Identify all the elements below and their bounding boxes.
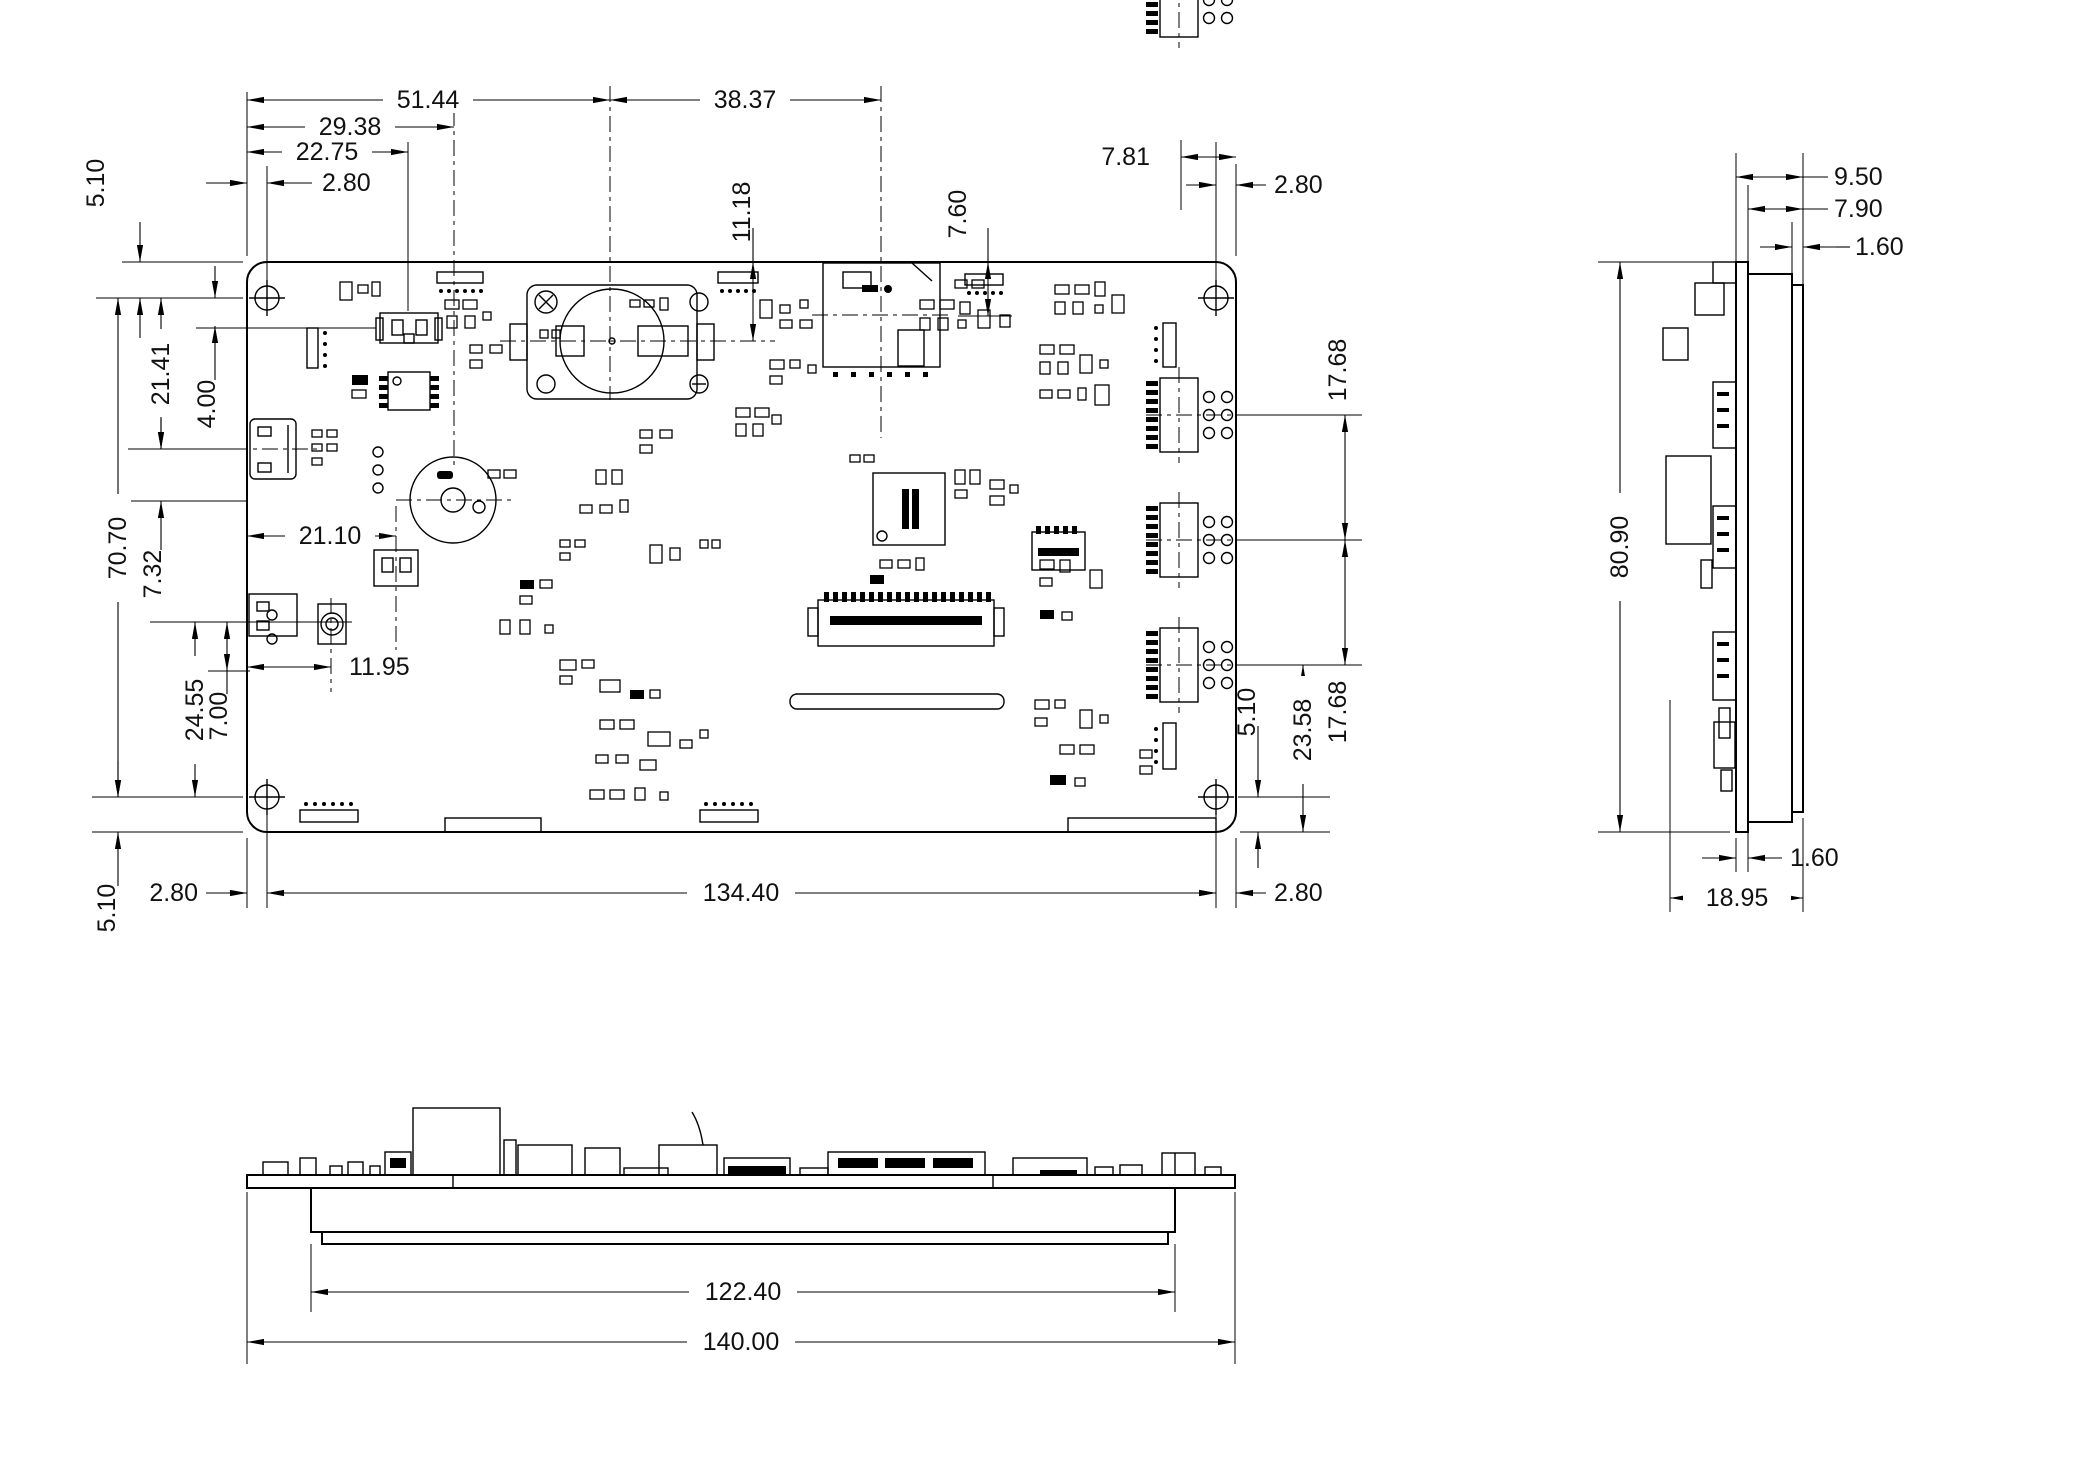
front-view — [247, 1108, 1235, 1244]
dim-label-51-44: 51.44 — [397, 86, 460, 114]
front-display-glass — [322, 1232, 1168, 1244]
dim-label-21-41: 21.41 — [147, 343, 175, 406]
bottom-edge-connector — [445, 818, 541, 832]
edge-connector-bottom-left — [249, 594, 297, 636]
front-components — [263, 1108, 1221, 1175]
dim-label-140-00: 140.00 — [703, 1328, 779, 1356]
extension-lines — [92, 92, 1362, 908]
dim-label-80-90: 80.90 — [1606, 516, 1634, 579]
dim-label-1-60-bottom: 1.60 — [1790, 844, 1839, 872]
pcb-dimension-drawing: 51.44 38.37 29.38 22.75 2.80 7.81 2.80 1… — [0, 0, 2077, 1465]
dim-label-5-10-right: 5.10 — [1233, 688, 1261, 737]
side-connectors — [1663, 262, 1736, 791]
side-pcb — [1736, 262, 1748, 832]
dim-label-29-38: 29.38 — [319, 113, 382, 141]
lcd-ffc-connector — [808, 592, 1004, 646]
dim-label-21-10: 21.10 — [299, 522, 362, 550]
dim-label-38-37: 38.37 — [714, 86, 777, 114]
buzzer — [410, 457, 496, 543]
dim-label-11-95: 11.95 — [349, 653, 410, 681]
dim-label-2-80-bottom-right: 2.80 — [1274, 879, 1323, 907]
dim-label-7-90: 7.90 — [1834, 195, 1883, 223]
soic8-ic — [379, 372, 439, 410]
side-display-glass — [1792, 285, 1803, 812]
board-outline — [247, 262, 1236, 832]
front-component-details — [390, 1158, 1077, 1176]
side-display-module — [1748, 274, 1792, 822]
dim-label-23-58: 23.58 — [1289, 699, 1317, 762]
dim-label-18-95: 18.95 — [1706, 884, 1769, 912]
main-ic — [873, 473, 945, 545]
top-view-dimensions: 51.44 38.37 29.38 22.75 2.80 7.81 2.80 1… — [82, 86, 1362, 932]
dim-label-1-60-top: 1.60 — [1855, 233, 1904, 261]
front-view-dimensions: 122.40 140.00 — [247, 1192, 1235, 1364]
board-slot — [790, 694, 1004, 709]
tact-switch — [318, 604, 346, 644]
front-pcb — [247, 1175, 1235, 1188]
drawing-canvas: 51.44 38.37 29.38 22.75 2.80 7.81 2.80 1… — [0, 0, 2077, 1465]
dim-label-7-32: 7.32 — [139, 550, 167, 599]
side-view-dimensions: 9.50 7.90 1.60 80.90 1.60 18.95 — [1598, 153, 1904, 912]
dim-label-7-00: 7.00 — [205, 692, 233, 741]
dim-label-4-00: 4.00 — [193, 380, 221, 429]
side-connector-pins — [1717, 392, 1729, 678]
coin-battery-holder — [510, 285, 714, 399]
dim-label-2-80-top-left: 2.80 — [322, 169, 371, 197]
dim-label-2-80-bottom-left: 2.80 — [149, 879, 198, 907]
front-display-module — [311, 1188, 1175, 1232]
dim-label-11-18: 11.18 — [728, 182, 756, 243]
jst-connector-top-left — [376, 313, 442, 343]
bottom-edge-connector — [1068, 818, 1216, 832]
dim-label-17-68-top: 17.68 — [1324, 339, 1352, 402]
dim-label-122-40: 122.40 — [705, 1278, 781, 1306]
dim-label-9-50: 9.50 — [1834, 163, 1883, 191]
dim-label-7-81: 7.81 — [1101, 143, 1150, 171]
dim-label-17-68-bottom: 17.68 — [1324, 681, 1352, 744]
dim-label-5-10-top-left: 5.10 — [82, 159, 110, 208]
jst-connector — [1146, 0, 1233, 48]
dim-label-134-40: 134.40 — [703, 879, 779, 907]
side-view — [1663, 262, 1803, 832]
dim-label-70-70: 70.70 — [104, 517, 132, 580]
dim-label-22-75: 22.75 — [296, 138, 359, 166]
dim-label-7-60: 7.60 — [944, 190, 972, 239]
dim-label-5-10-bottom-left: 5.10 — [93, 884, 121, 933]
mounting-holes — [249, 280, 1234, 815]
dim-label-2-80-top-right: 2.80 — [1274, 171, 1323, 199]
